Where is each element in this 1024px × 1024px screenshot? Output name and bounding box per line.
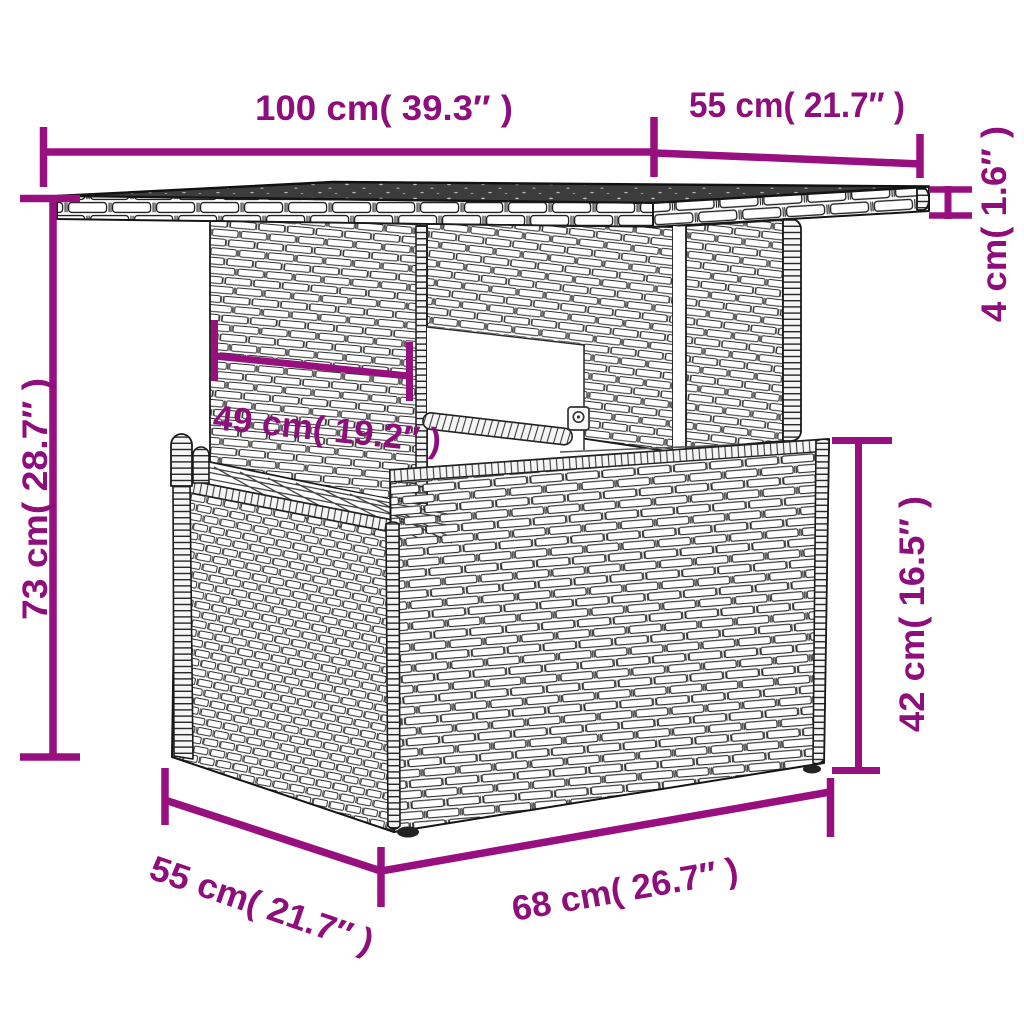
svg-text:42 cm( 16.5″ ): 42 cm( 16.5″ ) <box>893 496 932 732</box>
svg-text:100 cm( 39.3″ ): 100 cm( 39.3″ ) <box>255 89 513 128</box>
svg-text:55 cm( 21.7″ ): 55 cm( 21.7″ ) <box>145 849 379 962</box>
svg-text:55 cm( 21.7″ ): 55 cm( 21.7″ ) <box>689 86 905 125</box>
svg-text:4 cm( 1.6″ ): 4 cm( 1.6″ ) <box>975 126 1014 322</box>
svg-text:68 cm( 26.7″ ): 68 cm( 26.7″ ) <box>509 851 741 929</box>
svg-text:73 cm( 28.7″ ): 73 cm( 28.7″ ) <box>16 378 55 620</box>
